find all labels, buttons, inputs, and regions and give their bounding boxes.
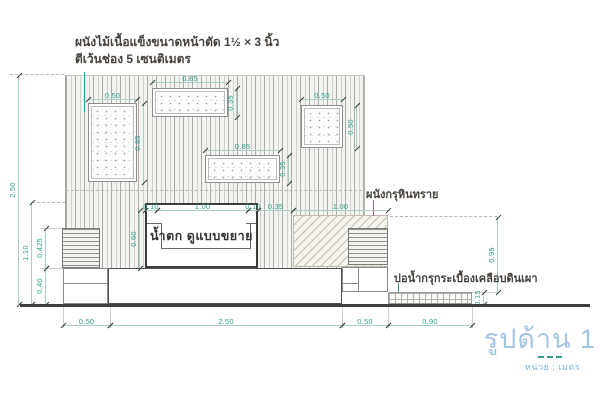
gravel-panel-left — [88, 103, 137, 182]
waterfall-box: น้ำตก ดูแบบขยาย — [145, 203, 258, 268]
gravel-panel-middle — [205, 155, 280, 183]
title-divider — [538, 356, 562, 358]
dim-gap-to-stone-wall: 0.35 — [258, 210, 293, 211]
weir-edge-left — [147, 223, 161, 224]
elevation-drawing: น้ำตก ดูแบบขยาย 0.50 0.85 0.85 0.50 0.10… — [0, 0, 600, 400]
dim-top-panel-height: 0.35 — [236, 88, 237, 117]
gravel-panel-top — [152, 88, 228, 117]
waterfall-level-dash — [32, 202, 65, 203]
dim-stone-wall-width: 1.00 — [293, 210, 388, 211]
tiled-pond — [388, 292, 472, 304]
gravel-panel-right — [301, 105, 343, 148]
platform-center — [108, 268, 342, 304]
louvre-box-left — [62, 228, 100, 268]
dim-mid-panel-height: 0.35 — [288, 155, 289, 183]
material-note-line1: ผนังไม้เนื้อแข็งขนาดหน้าตัด 1½ × 3 นิ้ว — [75, 34, 279, 51]
dim-base-height: 0.40 — [45, 268, 46, 304]
stone-wall-base — [342, 267, 388, 292]
dim-right-panel-width: 0.50 — [301, 99, 343, 100]
dim-mid-panel-width: 0.85 — [205, 150, 280, 151]
material-note-line2: ตีเว้นช่อง 5 เซนติเมตร — [75, 51, 279, 68]
sandstone-wall-label: ผนังกรุหินทราย — [366, 185, 438, 203]
dim-base-center-width: 2.50 — [110, 325, 342, 326]
ground-line — [20, 304, 590, 307]
dim-base-left-width: 0.50 — [63, 325, 110, 326]
unit-label: หน่วย : เมตร — [440, 360, 580, 374]
gravel-texture — [304, 108, 340, 145]
extension-line — [40, 228, 62, 229]
gravel-texture — [208, 158, 277, 180]
extension-line — [40, 268, 63, 269]
dim-planter-height: 0.425 — [45, 228, 46, 268]
pond-label: บ่อน้ำกรุกระเบื้องเคลือบดินเผา — [394, 269, 538, 287]
dim-waterfall-inner-width: 1.00 — [157, 210, 248, 211]
louvre-box-right — [348, 228, 388, 265]
step-divider — [63, 283, 108, 284]
material-note: ผนังไม้เนื้อแข็งขนาดหน้าตัด 1½ × 3 นิ้ว … — [75, 34, 279, 68]
note-leader-line — [84, 72, 85, 112]
base-divider-horizontal — [342, 283, 358, 284]
gravel-texture — [155, 91, 225, 114]
dim-top-panel-width: 0.85 — [152, 82, 228, 83]
drawing-title: รูปด้าน 1 — [440, 326, 596, 353]
dim-right-panel-height: 0.50 — [356, 105, 357, 148]
dim-pond-depth: 0.15 — [483, 292, 484, 304]
dim-base-right-width: 0.50 — [342, 325, 388, 326]
dim-left-panel-height: 0.85 — [143, 103, 144, 182]
stonewall-level-dash — [390, 216, 497, 217]
dim-waterfall-height: 0.60 — [139, 210, 140, 268]
dim-left-panel-width: 0.50 — [88, 99, 137, 100]
wall-course-line — [66, 190, 362, 191]
waterfall-label: น้ำตก ดูแบบขยาย — [147, 226, 256, 246]
gravel-texture — [91, 106, 134, 179]
base-divider-vertical — [358, 267, 359, 292]
platform-step-left — [63, 268, 108, 304]
dim-total-wall-height: 2.50 — [18, 75, 19, 304]
title-block: รูปด้าน 1 หน่วย : เมตร — [440, 326, 596, 374]
dim-waterfall-top-level: 1.10 — [31, 202, 32, 304]
